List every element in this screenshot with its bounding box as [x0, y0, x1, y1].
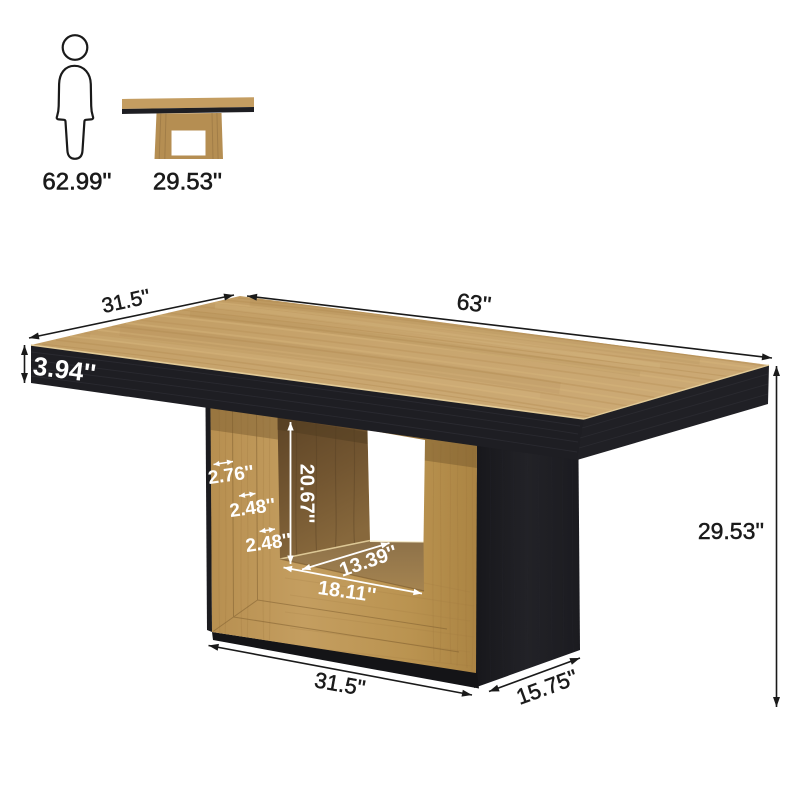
svg-text:63'': 63'' [455, 288, 492, 318]
svg-text:62.99'': 62.99'' [42, 169, 111, 196]
svg-text:20.67'': 20.67'' [296, 464, 318, 524]
svg-text:29.53'': 29.53'' [153, 169, 222, 196]
svg-text:29.53'': 29.53'' [698, 518, 764, 544]
